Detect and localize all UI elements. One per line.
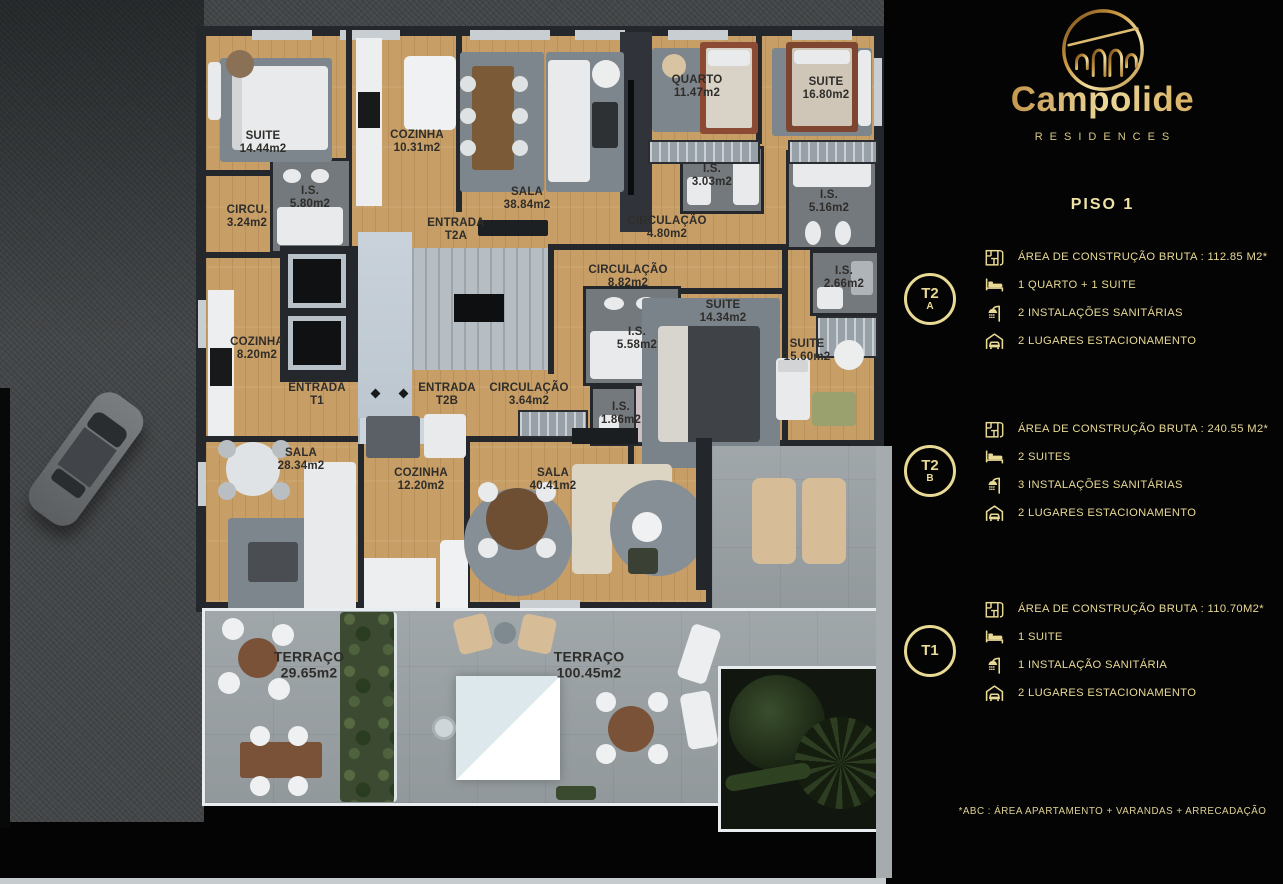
chair: [478, 482, 498, 502]
stair-landing: [454, 294, 504, 322]
room-label-circulacao-882: CIRCULAÇÃO8.82m2: [588, 264, 667, 290]
chair: [288, 726, 308, 746]
unit-block-t2b: T2 B ÁREA DE CONSTRUÇÃO BRUTA : 240.55 M…: [892, 415, 1283, 527]
bed-icon: [984, 447, 1005, 468]
chair: [218, 440, 236, 458]
spec-row-bedrooms: 2 SUITES: [984, 443, 1281, 471]
unit-specs-t2b: ÁREA DE CONSTRUÇÃO BRUTA : 240.55 M2* 2 …: [984, 415, 1281, 527]
chair: [596, 744, 616, 764]
kitchen-island: [404, 56, 456, 130]
unit-block-t1: T1 ÁREA DE CONSTRUÇÃO BRUTA : 110.70M2* …: [892, 595, 1283, 707]
elevator: [288, 316, 346, 370]
wall: [548, 244, 554, 374]
street-edge: [0, 388, 10, 828]
info-panel: Campolide RESIDENCES PISO 1 T2 A ÁREA DE…: [892, 0, 1283, 884]
window: [198, 462, 206, 506]
console-table: [478, 220, 548, 236]
round-table: [238, 638, 278, 678]
sink: [283, 169, 301, 183]
chair: [596, 692, 616, 712]
armchair: [834, 340, 864, 370]
lobby: [358, 232, 412, 428]
unit-specs-t2a: ÁREA DE CONSTRUÇÃO BRUTA : 112.85 M2* 1 …: [984, 243, 1281, 355]
chair: [268, 678, 290, 700]
wardrobe: [788, 140, 878, 164]
sofa: [304, 462, 356, 612]
room-label-entrada-t1: ENTRADAT1: [288, 382, 346, 408]
spec-row-area: ÁREA DE CONSTRUÇÃO BRUTA : 240.55 M2*: [984, 415, 1281, 443]
floorplan-icon: [984, 419, 1005, 440]
window: [668, 30, 728, 40]
street-shadow: [0, 0, 204, 340]
pergola-canopy: [456, 676, 560, 780]
spec-row-area: ÁREA DE CONSTRUÇÃO BRUTA : 110.70M2*: [984, 595, 1281, 623]
chair: [272, 624, 294, 646]
unit-badge-t1: T1: [904, 625, 956, 677]
bed-icon: [984, 627, 1005, 648]
cooktop: [358, 92, 380, 128]
room-label-is-303: I.S.3.03m2: [692, 163, 732, 189]
fountain: [432, 716, 456, 740]
wall: [346, 26, 352, 176]
island-seating: [440, 540, 468, 616]
floorplan-icon: [984, 247, 1005, 268]
window: [792, 30, 852, 40]
tv-screen: [628, 80, 634, 195]
chair: [218, 482, 236, 500]
chair: [218, 672, 240, 694]
brand-name: Campolide: [892, 80, 1283, 120]
spec-row-bedrooms: 1 SUITE: [984, 623, 1281, 651]
fridge: [424, 414, 466, 458]
chair: [288, 776, 308, 796]
room-label-suite-t1: SUITE14.44m2: [240, 130, 287, 156]
spec-row-bathrooms: 2 INSTALAÇÕES SANITÁRIAS: [984, 299, 1281, 327]
room-label-sala-t2b: SALA40.41m2: [530, 467, 577, 493]
armchair: [592, 60, 620, 88]
chair: [460, 76, 476, 92]
room-label-terraco-t2b: TERRAÇO100.45m2: [554, 649, 625, 680]
dresser: [208, 62, 221, 120]
room-label-is-580: I.S.5.80m2: [290, 185, 330, 211]
side-table: [632, 512, 662, 542]
tv-console: [572, 428, 638, 444]
unit-badge-t2a: T2 A: [904, 273, 956, 325]
room-label-sala-t1: SALA28.34m2: [278, 447, 325, 473]
spec-row-parking: 2 LUGARES ESTACIONAMENTO: [984, 327, 1281, 355]
stairwell: [412, 248, 548, 370]
room-label-suite-1560: SUITE15.60m2: [784, 338, 831, 364]
window: [874, 58, 882, 126]
floorplan-icon: [984, 599, 1005, 620]
room-label-cozinha-t2b: COZINHA12.20m2: [394, 467, 448, 493]
spec-row-parking: 2 LUGARES ESTACIONAMENTO: [984, 679, 1281, 707]
kitchen-counter: [364, 558, 436, 614]
armchair: [628, 548, 658, 574]
sun-lounger: [752, 478, 796, 564]
spec-row-area: ÁREA DE CONSTRUÇÃO BRUTA : 112.85 M2*: [984, 243, 1281, 271]
brand-tagline: RESIDENCES: [892, 131, 1283, 143]
terrace-wing: [712, 446, 884, 616]
bidet: [835, 221, 851, 245]
room-label-is-558: I.S.5.58m2: [617, 326, 657, 352]
bench: [858, 50, 871, 126]
page-title: PISO 1: [892, 196, 1283, 214]
spec-row-bedrooms: 1 QUARTO + 1 SUITE: [984, 271, 1281, 299]
window: [520, 600, 580, 608]
garage-icon: [984, 331, 1005, 352]
planter: [556, 786, 596, 800]
bed-blanket: [658, 326, 688, 442]
chair: [250, 726, 270, 746]
chair: [478, 538, 498, 558]
spec-row-parking: 2 LUGARES ESTACIONAMENTO: [984, 499, 1281, 527]
room-label-entrada-t2a: ENTRADAT2A: [427, 217, 485, 243]
unit-specs-t1: ÁREA DE CONSTRUÇÃO BRUTA : 110.70M2* 1 S…: [984, 595, 1281, 707]
window: [252, 30, 312, 40]
room-label-is-186: I.S.1.86m2: [601, 401, 641, 427]
chair: [648, 692, 668, 712]
spec-row-bathrooms: 3 INSTALAÇÕES SANITÁRIAS: [984, 471, 1281, 499]
palm-tree: [795, 717, 880, 809]
chair: [512, 140, 528, 156]
chair: [272, 482, 290, 500]
window: [198, 300, 206, 348]
chair: [512, 76, 528, 92]
chair: [536, 538, 556, 558]
armchair: [226, 50, 254, 78]
room-label-circulacao-480: CIRCULAÇÃO4.80m2: [627, 215, 706, 241]
spec-row-bathrooms: 1 INSTALAÇÃO SANITÁRIA: [984, 651, 1281, 679]
unit-badge-t2b: T2 B: [904, 445, 956, 497]
chair: [250, 776, 270, 796]
garage-icon: [984, 503, 1005, 524]
sofa-chaise: [572, 464, 612, 574]
side-table: [494, 622, 516, 644]
chair: [460, 140, 476, 156]
room-label-circulacao-364: CIRCULAÇÃO3.64m2: [489, 382, 568, 408]
room-label-circu-t1: CIRCU.3.24m2: [227, 204, 268, 230]
room-label-is-266: I.S.2.66m2: [824, 265, 864, 291]
bottom-edge-strip: [0, 878, 886, 884]
hedge-planter: [340, 612, 397, 802]
cooktop: [210, 348, 232, 386]
pillow: [708, 50, 750, 66]
chair: [512, 108, 528, 124]
dining-table: [240, 742, 322, 778]
dining-table: [472, 66, 514, 170]
room-label-sala-t2a: SALA38.84m2: [504, 186, 551, 212]
coffee-table: [592, 102, 618, 148]
unit-block-t2a: T2 A ÁREA DE CONSTRUÇÃO BRUTA : 112.85 M…: [892, 243, 1283, 355]
shelving-unit: [696, 438, 712, 590]
room-label-suite-t2a: SUITE16.80m2: [803, 76, 850, 102]
sofa: [548, 60, 590, 182]
room-label-cozinha-t1: COZINHA8.20m2: [230, 336, 284, 362]
shower-icon: [984, 475, 1005, 496]
garage-icon: [984, 683, 1005, 704]
window: [470, 30, 550, 40]
room-label-is-516: I.S.5.16m2: [809, 189, 849, 215]
room-label-suite-1434: SUITE14.34m2: [700, 299, 747, 325]
sink: [311, 169, 329, 183]
bathtub: [277, 207, 343, 245]
round-table: [608, 706, 654, 752]
bed-icon: [984, 275, 1005, 296]
shower-icon: [984, 303, 1005, 324]
window: [575, 30, 625, 40]
chair: [648, 744, 668, 764]
elevator: [288, 254, 346, 308]
room-label-quarto: QUARTO11.47m2: [672, 74, 723, 100]
room-label-entrada-t2b: ENTRADAT2B: [418, 382, 476, 408]
sink: [604, 297, 624, 310]
room-label-terraco-t1: TERRAÇO29.65m2: [274, 649, 345, 680]
garden: [718, 666, 880, 832]
chair: [460, 108, 476, 124]
sun-lounger: [802, 478, 846, 564]
pillow: [794, 50, 850, 64]
toilet: [805, 221, 821, 245]
page: SUITE14.44m2 CIRCU.3.24m2 I.S.5.80m2 COZ…: [0, 0, 1283, 884]
coffee-table: [248, 542, 298, 582]
room-label-cozinha-t2a: COZINHA10.31m2: [390, 129, 444, 155]
media-wall: [620, 32, 652, 232]
side-pavement: [876, 446, 892, 878]
shower-icon: [984, 655, 1005, 676]
utility-counter: [366, 416, 420, 458]
wardrobe: [648, 140, 760, 164]
abc-footnote: *ABC : ÁREA APARTAMENTO + VARANDAS + ARR…: [952, 806, 1273, 817]
chair: [222, 618, 244, 640]
green-rug: [812, 392, 856, 426]
floorplan-render: SUITE14.44m2 CIRCU.3.24m2 I.S.5.80m2 COZ…: [0, 0, 892, 884]
